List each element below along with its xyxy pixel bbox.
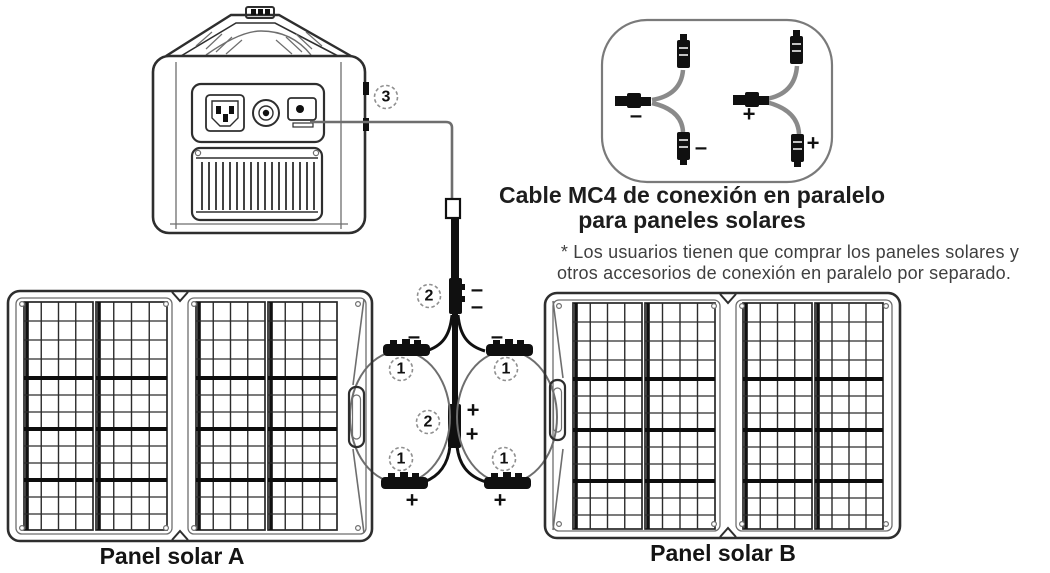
- mc4-connector-upper-left: [383, 339, 430, 356]
- mc4-title-line2: para paneles solares: [578, 207, 806, 233]
- callout-2-number: 2: [424, 414, 433, 431]
- plus-sign: +: [406, 488, 419, 513]
- strap-line: [553, 449, 563, 530]
- plus-sign: +: [743, 102, 756, 127]
- plus-sign: +: [807, 131, 820, 156]
- ac-inlet-icon: [206, 95, 244, 131]
- dc-barrel-jack-icon: [253, 100, 279, 126]
- rear-port-panel: [192, 84, 324, 142]
- station-body: [153, 56, 365, 233]
- solar-cell-grids-a: [24, 302, 337, 530]
- callout-3-number: 3: [382, 89, 391, 106]
- plus-sign: +: [467, 398, 480, 423]
- solar-panel-a: Panel solar A: [8, 291, 372, 569]
- callout-1-upper-right: 1: [495, 358, 518, 381]
- strap-line: [553, 301, 563, 378]
- fold-notch-bottom: [720, 528, 736, 537]
- cable-segment: [451, 218, 459, 280]
- corner-screws-b: [557, 304, 889, 527]
- fold-notch-top: [172, 292, 188, 301]
- plus-sign: +: [466, 422, 479, 447]
- callout-1-number: 1: [397, 361, 406, 378]
- callout-1-number: 1: [502, 361, 511, 378]
- minus-sign: –: [491, 324, 503, 349]
- mc4-connector-lower-left: [381, 472, 428, 489]
- side-latch: [363, 82, 369, 95]
- dc-plug-connector: [446, 199, 460, 218]
- plus-sign: +: [494, 488, 507, 513]
- side-latch: [363, 118, 369, 131]
- power-station-illustration: [153, 7, 369, 233]
- fold-notch-top: [720, 294, 736, 303]
- mc4-connector-lower-right: [484, 472, 531, 489]
- solar-panel-b: Panel solar B: [545, 293, 900, 566]
- manual-diagram: – – + + Cable MC4 de conexión en paralel…: [0, 0, 1050, 573]
- panel-a-handle-icon: [349, 387, 364, 447]
- minus-sign: –: [408, 324, 420, 349]
- solar-cell-grids-b: [573, 303, 883, 529]
- minus-sign: –: [471, 294, 483, 319]
- cable-segment: [452, 312, 458, 406]
- callout-2-top: 2: [418, 285, 441, 308]
- mc4-cable-box: – – + +: [602, 20, 832, 182]
- note-line1: * Los usuarios tienen que comprar los pa…: [561, 242, 1019, 262]
- callout-2-number: 2: [425, 288, 434, 305]
- minus-sign: –: [695, 135, 707, 160]
- thin-wire: [310, 122, 452, 198]
- fold-notch-bottom: [172, 531, 188, 540]
- note-line2: otros accesorios de conexión en paralelo…: [557, 263, 1011, 283]
- station-input-cable: [310, 122, 465, 448]
- callout-3: 3: [375, 86, 398, 109]
- callout-2-middle: 2: [417, 411, 440, 434]
- callout-1-number: 1: [397, 451, 406, 468]
- minus-sign: –: [630, 103, 642, 128]
- callout-1-lower-right: 1: [493, 448, 516, 471]
- callout-1-upper-left: 1: [390, 358, 413, 381]
- mc4-title-line1: Cable MC4 de conexión en paralelo: [499, 182, 885, 208]
- diagram-canvas: – – + + Cable MC4 de conexión en paralel…: [0, 0, 1050, 573]
- vent-grille: [192, 148, 322, 220]
- panel-b-label: Panel solar B: [650, 540, 796, 566]
- carry-handle-icon: [166, 7, 351, 56]
- cable-molded-junction: [449, 278, 462, 314]
- corner-screws-a: [20, 302, 361, 531]
- panel-a-label: Panel solar A: [100, 543, 245, 569]
- callout-1-number: 1: [500, 451, 509, 468]
- callout-1-lower-left: 1: [390, 448, 413, 471]
